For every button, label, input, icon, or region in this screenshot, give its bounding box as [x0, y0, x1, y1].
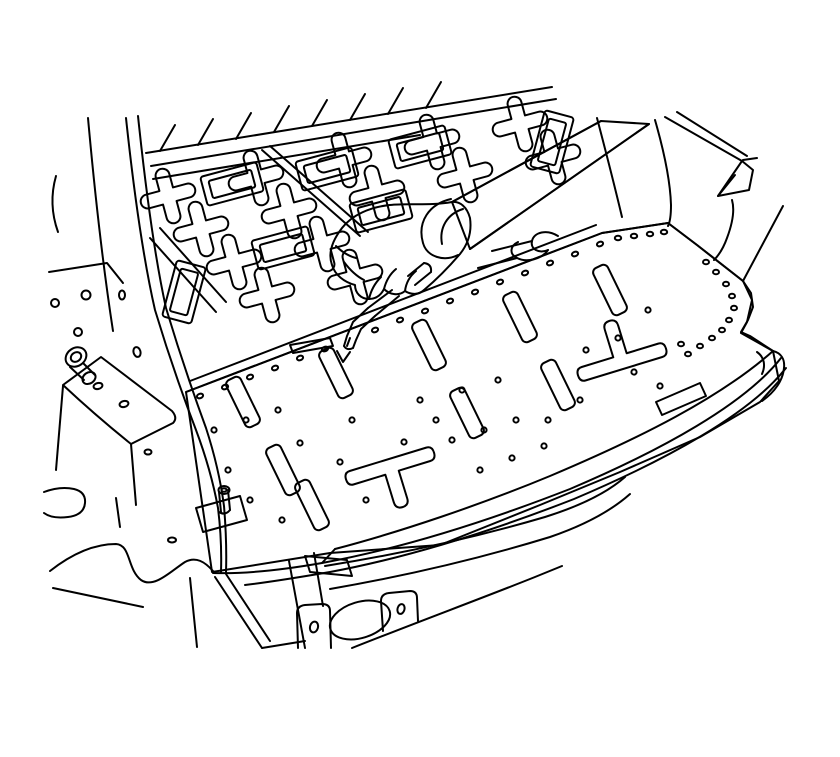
rear-floor-panel	[186, 223, 786, 585]
weld-seam	[186, 223, 668, 392]
lower-bumper-area	[50, 477, 630, 648]
left-pillar	[49, 116, 226, 572]
sleeve	[452, 121, 601, 202]
panel-slots	[224, 263, 668, 532]
bracket-stud	[62, 343, 98, 386]
right-quarter-panel	[655, 112, 783, 281]
left-bracket-assembly	[44, 291, 176, 543]
cuff	[421, 199, 463, 258]
exhaust-oval	[325, 594, 395, 647]
illustration-canvas: rear floor panel with plug-weld holes, s…	[0, 0, 840, 757]
upper-floor-panel	[134, 82, 622, 329]
rib-slot-pattern	[134, 90, 588, 330]
technical-illustration: rear floor panel with plug-weld holes, s…	[0, 0, 840, 757]
right-edge-holes	[678, 260, 737, 357]
